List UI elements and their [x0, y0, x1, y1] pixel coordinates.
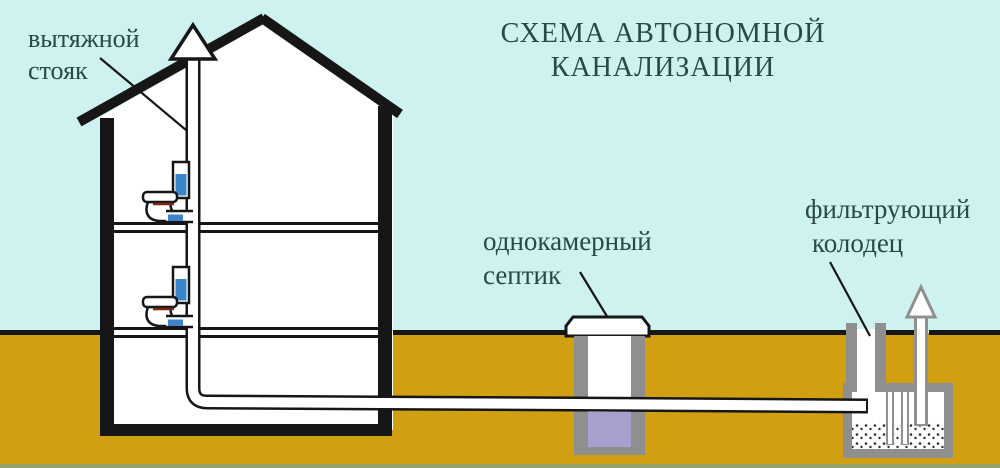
- ground-line-left: [0, 330, 104, 335]
- cistern-water: [176, 279, 187, 301]
- ground-line-mid1: [390, 330, 567, 335]
- label-vent-stack-line1: вытяжной: [28, 24, 140, 53]
- bowl-rim: [143, 192, 177, 202]
- label-well-line2: колодец: [812, 228, 903, 258]
- label-well-line1: фильтрующий: [805, 194, 970, 224]
- house-right-wall: [378, 106, 392, 434]
- ground-line-right: [929, 330, 1000, 335]
- diagram-page: СХЕМА АВТОНОМНОЙ КАНАЛИЗАЦИИ вытяжной ст…: [0, 0, 1000, 468]
- bottom-edge-strip: [0, 464, 1000, 468]
- label-septic-line2: септик: [483, 260, 562, 290]
- basement-floor: [100, 424, 392, 436]
- well-neck-right-wall: [875, 323, 886, 392]
- septic-lid: [566, 317, 649, 336]
- septic-tank: [566, 317, 649, 455]
- label-vent-stack-line2: стояк: [28, 56, 88, 85]
- slab-line: [110, 230, 382, 233]
- slab-line: [110, 222, 382, 225]
- house-left-wall: [100, 118, 114, 434]
- trap-water: [168, 215, 183, 222]
- autonomous-sewerage-diagram: СХЕМА АВТОНОМНОЙ КАНАЛИЗАЦИИ вытяжной ст…: [0, 0, 1000, 468]
- septic-bottom: [574, 447, 645, 455]
- slab-line: [110, 327, 382, 330]
- cistern-water: [176, 174, 187, 196]
- septic-right-wall: [631, 336, 645, 455]
- well-neck-interior: [857, 329, 875, 392]
- ground-line-mid3: [886, 330, 914, 335]
- well-neck-left-wall: [846, 323, 857, 392]
- slab-line: [110, 335, 382, 338]
- label-septic-line1: однокамерный: [483, 226, 652, 256]
- trap-water: [168, 320, 183, 327]
- diagram-title-line1: СХЕМА АВТОНОМНОЙ: [501, 18, 826, 49]
- ground-line-mid2: [649, 330, 847, 335]
- gravel-filter-layer: [852, 421, 944, 449]
- septic-left-wall: [574, 336, 588, 455]
- diagram-title-line2: КАНАЛИЗАЦИИ: [551, 52, 775, 83]
- septic-liquid: [588, 412, 631, 447]
- bowl-rim: [143, 297, 177, 307]
